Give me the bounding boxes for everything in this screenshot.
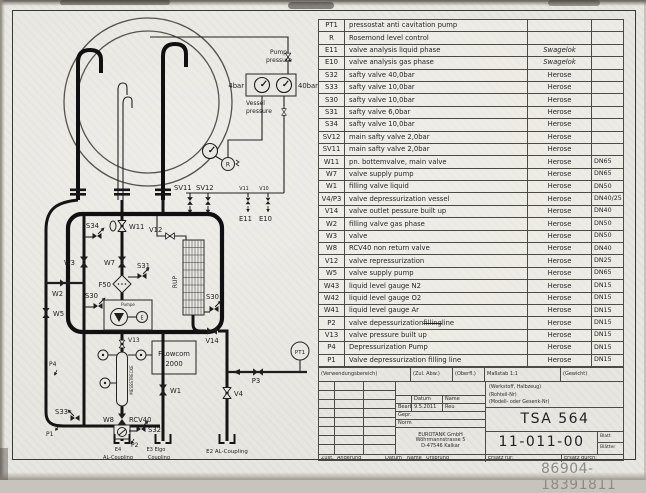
table-row: RRosemond level control xyxy=(319,32,623,44)
valve-icon xyxy=(166,233,175,239)
table-row: V4/P3valve depressurization vesselHerose… xyxy=(319,193,623,205)
vent-arrow-icon xyxy=(246,206,250,212)
label-4bar: 4bar xyxy=(228,82,244,90)
label-r: R xyxy=(226,162,230,169)
label-motor-e: E xyxy=(140,316,143,322)
safety-valve-icon xyxy=(187,197,193,205)
label-w1: W1 xyxy=(170,387,181,395)
safety-valve-icon xyxy=(205,197,211,205)
label-rup: RUP xyxy=(172,276,179,289)
field-bearb: Bearb. xyxy=(396,404,411,411)
table-row: P1Valve depressurization filling lineHer… xyxy=(319,355,623,366)
table-row: W1filling valve liquidHeroseDN50 xyxy=(319,181,623,193)
table-row: W42liquid level gauge O2HeroseDN15 xyxy=(319,293,623,305)
label-pumpe: Pumpe xyxy=(121,302,135,307)
field-datum-header: Datum xyxy=(411,396,443,403)
table-row: P2valve depessurization filling lineHero… xyxy=(319,317,623,329)
outlet-line: V4 P3 PT1 E2 AL-Coupling xyxy=(206,331,309,455)
table-row: W8RCV40 non return valveHeroseDN40 xyxy=(319,243,623,255)
field-modell: (Modell- oder Gesenk-Nr) xyxy=(489,399,623,407)
label-vessel-pressure-2: pressure xyxy=(246,108,272,115)
field-werkstoff: (Werkstoff, Halbzeug) xyxy=(489,384,623,392)
valve-icon xyxy=(118,221,126,232)
field-gepr: Gepr. xyxy=(396,412,485,420)
arrow-icon xyxy=(53,369,59,376)
label-w8: W8 xyxy=(103,416,114,424)
table-row: PT1pressostat anti cavitation pump xyxy=(319,20,623,32)
field-oberfl: (Oberfl.) xyxy=(453,368,485,382)
company-city: D-47546 Kalkar xyxy=(421,444,460,450)
table-row: E10valve analysis gas phaseSwagelok xyxy=(319,57,623,69)
drawing-number: 11-011-00 xyxy=(486,432,597,454)
table-row: S30safty valve 10,0barHerose xyxy=(319,94,623,106)
valve-icon xyxy=(159,385,167,396)
label-w3: W3 xyxy=(64,259,75,267)
vent-arrow-icon xyxy=(266,206,270,212)
field-gewicht: (Gewicht) xyxy=(561,368,623,382)
drawing-id-block: (Werkstoff, Halbzeug) (Rohteil-Nr) (Mode… xyxy=(485,382,623,454)
label-w2: W2 xyxy=(52,290,63,298)
w3-branch: S34 W3 S30 W2 xyxy=(46,215,106,426)
label-v12: V12 xyxy=(149,226,162,234)
field-zust: Zust. xyxy=(321,456,334,462)
field-ersatz-fuer: Ersatz für: xyxy=(488,456,514,462)
label-pump-pressure: Pump xyxy=(270,49,287,56)
title-block: (Verwendungsbereich) (Zul. Abw.) (Oberfl… xyxy=(318,367,624,461)
table-row: S34safty valve 10,0barHerose xyxy=(319,119,623,131)
label-v14: V14 xyxy=(205,337,218,345)
piping-diagram: Pump pressure 4bar 40bar Vessel pressure… xyxy=(12,10,318,461)
table-row: W3valveHeroseDN50 xyxy=(319,231,623,243)
company-block: EUROTANK GmbH Wöhrmannstrasse 5 D-47546 … xyxy=(396,428,485,454)
label-w7: W7 xyxy=(104,259,115,267)
label-s34: S34 xyxy=(86,222,99,230)
field-bearb-name: Reu xyxy=(443,404,485,411)
field-blatt: Blatt xyxy=(598,432,623,443)
label-s33: S33 xyxy=(55,408,68,416)
label-p2: P2 xyxy=(131,442,139,449)
label-e3-coupling: Coupling xyxy=(148,455,170,461)
label-p4: P4 xyxy=(49,361,57,368)
parts-table: PT1pressostat anti cavitation pumpRRosem… xyxy=(318,19,624,367)
field-datum2: Datum xyxy=(385,456,402,462)
label-w11: W11 xyxy=(129,223,144,231)
label-pt1: PT1 xyxy=(295,350,305,356)
table-row: W2filling valve gas phaseHeroseDN50 xyxy=(319,218,623,230)
sheet-block: Blatt Blätter xyxy=(597,432,623,454)
field-norm: Norm xyxy=(396,420,485,428)
label-v4: V4 xyxy=(234,390,243,398)
label-v10: V10 xyxy=(259,186,268,192)
label-s31: S31 xyxy=(137,262,150,270)
valve-icon xyxy=(42,308,49,318)
field-aenderung: Änderung xyxy=(337,456,361,462)
valve-icon xyxy=(80,257,88,268)
safety-valve-icon xyxy=(210,301,222,313)
label-e11: E11 xyxy=(239,215,252,223)
table-row: SV12main safty valve 2,0barHerose xyxy=(319,132,623,144)
label-p3: P3 xyxy=(252,377,260,385)
gauge-icon xyxy=(277,78,292,93)
label-v13: V13 xyxy=(128,337,140,344)
table-row: SV11main safty valve 2,0barHerose xyxy=(319,144,623,156)
label-40bar: 40bar xyxy=(298,82,318,90)
valve-icon xyxy=(282,109,287,116)
label-e2-coupling: E2 AL-Coupling xyxy=(206,449,248,455)
label-sv11: SV11 xyxy=(174,184,192,192)
field-zul-abw: (Zul. Abw.) xyxy=(411,368,453,382)
approval-block: Datum Name Bearb. 9.5.2011 Reu Gepr. Nor… xyxy=(396,382,485,454)
valve-icon xyxy=(119,340,125,348)
label-f50: F50 xyxy=(98,281,111,289)
pressure-gauge-panel: Pump pressure 4bar 40bar Vessel pressure xyxy=(150,37,318,193)
field-blaetter: Blätter xyxy=(598,443,623,454)
field-verwendungsbereich: (Verwendungsbereich) xyxy=(319,368,411,382)
flange-icon xyxy=(114,189,130,196)
table-row: W11pn. bottemvalve, main valveHeroseDN65 xyxy=(319,156,623,168)
safety-valve-icon xyxy=(68,410,80,422)
label-e4-coupling: AL-Coupling xyxy=(103,455,133,461)
table-row: S31safty valve 6,0barHerose xyxy=(319,107,623,119)
field-massstab: Maßstab 1:1 xyxy=(485,368,561,382)
field-rohteil: (Rohteil-Nr) xyxy=(489,392,623,400)
table-row: W43liquid level gauge N2HeroseDN15 xyxy=(319,280,623,292)
field-ursprung: Ursprung xyxy=(426,456,449,462)
table-row: V12valve repressurizationHeroseDN25 xyxy=(319,255,623,267)
valve-icon xyxy=(118,257,126,268)
level-control: R xyxy=(203,144,240,171)
label-e3: E3 Elgo xyxy=(147,447,166,453)
field-bearb-datum: 9.5.2011 xyxy=(411,404,443,411)
werkstoff-block: (Werkstoff, Halbzeug) (Rohteil-Nr) (Mode… xyxy=(486,382,623,408)
valve-icon xyxy=(223,388,231,399)
table-row: S32safty valve 40,0barHerose xyxy=(319,70,623,82)
label-v11: V11 xyxy=(239,186,248,192)
label-p1: P1 xyxy=(46,431,54,438)
table-row: E11valve analysis liquid phaseSwagelok xyxy=(319,45,623,57)
label-s30-right: S30 xyxy=(206,293,219,301)
label-e10: E10 xyxy=(259,215,272,223)
pump-unit: Pumpe E xyxy=(104,300,152,330)
table-row: W41liquid level gauge ArHeroseDN15 xyxy=(319,305,623,317)
part-number: TSA 564 xyxy=(486,408,623,432)
table-row: S33safty valve 10,0barHerose xyxy=(319,82,623,94)
table-row: P4Depressurization PumpHeroseDN15 xyxy=(319,342,623,354)
vessel xyxy=(64,18,232,200)
watermark-text: 86904-18391811 xyxy=(541,461,646,493)
label-s30-left: S30 xyxy=(85,292,98,300)
measuring-section: V13 MESSSTRECKE FLowcom 2000 W8 RCV40 S3… xyxy=(98,330,196,461)
label-pump-pressure-2: pressure xyxy=(266,57,292,64)
label-w5: W5 xyxy=(53,310,64,318)
table-row: V14valve outlet pessure built upHeroseDN… xyxy=(319,206,623,218)
label-sv12: SV12 xyxy=(196,184,214,192)
label-messstrecke: MESSSTRECKE xyxy=(129,365,134,395)
valve-icon xyxy=(118,414,126,425)
table-row: W5valve supply pumpHeroseDN65 xyxy=(319,268,623,280)
field-name2: Name xyxy=(407,456,422,462)
gauge-icon xyxy=(255,78,270,93)
valve-icon xyxy=(266,198,271,205)
label-flowcom-2000: 2000 xyxy=(165,360,182,368)
table-row: V13valve pressure built upHeroseDN15 xyxy=(319,330,623,342)
field-name-header: Name xyxy=(443,396,485,403)
vent-header: SV11 SV12 V11 V10 E11 E10 xyxy=(174,184,284,223)
label-rcv40: RCV40 xyxy=(129,416,151,424)
revision-rows xyxy=(319,382,396,454)
label-s32: S32 xyxy=(148,426,161,434)
valve-icon xyxy=(246,198,251,205)
table-row: W7valve supply pumpHeroseDN65 xyxy=(319,169,623,181)
label-e4: E4 xyxy=(115,447,121,453)
